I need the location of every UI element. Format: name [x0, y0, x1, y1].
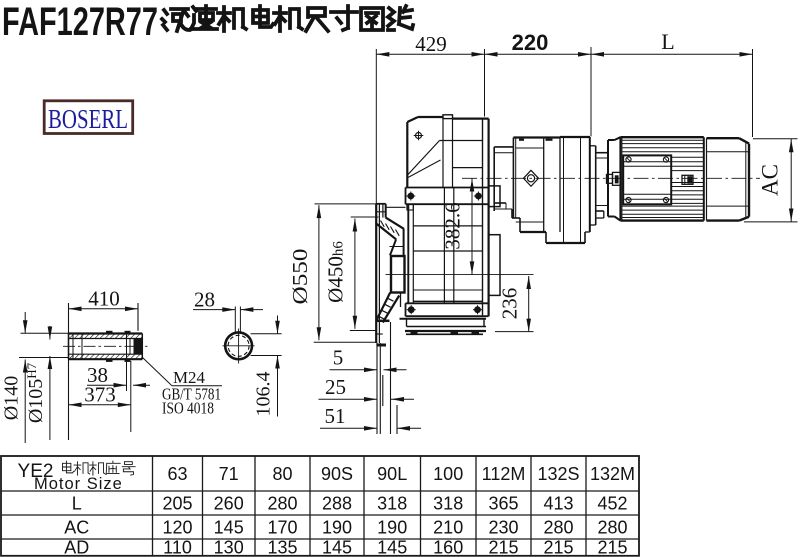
svg-text:132S: 132S [537, 464, 579, 484]
svg-text:452: 452 [597, 494, 627, 514]
svg-text:280: 280 [597, 518, 627, 538]
svg-text:Ø550: Ø550 [288, 249, 312, 305]
svg-text:BOSERL: BOSERL [48, 103, 128, 134]
svg-text:190: 190 [377, 518, 407, 538]
svg-text:71: 71 [219, 464, 239, 484]
svg-text:170: 170 [267, 518, 297, 538]
svg-text:Ø140: Ø140 [1, 376, 23, 420]
svg-text:80: 80 [272, 464, 292, 484]
svg-text:382.6: 382.6 [441, 202, 465, 249]
svg-text:145: 145 [322, 538, 352, 557]
svg-text:410: 410 [88, 287, 120, 311]
svg-text:280: 280 [543, 518, 573, 538]
svg-text:145: 145 [214, 518, 244, 538]
svg-text:215: 215 [597, 538, 627, 557]
svg-text:215: 215 [543, 538, 573, 557]
svg-text:205: 205 [162, 494, 192, 514]
svg-text:230: 230 [488, 518, 518, 538]
svg-text:90L: 90L [377, 464, 407, 484]
svg-text:AD: AD [64, 538, 89, 557]
svg-text:120: 120 [162, 518, 192, 538]
svg-text:373: 373 [84, 383, 116, 407]
svg-text:365: 365 [488, 494, 518, 514]
svg-text:260: 260 [214, 494, 244, 514]
svg-text:28: 28 [194, 288, 215, 312]
svg-text:132M: 132M [590, 464, 635, 484]
svg-text:63: 63 [167, 464, 187, 484]
svg-text:280: 280 [267, 494, 297, 514]
svg-text:100: 100 [433, 464, 463, 484]
svg-text:318: 318 [433, 494, 463, 514]
svg-text:112M: 112M [482, 464, 526, 484]
svg-text:190: 190 [322, 518, 352, 538]
svg-text:413: 413 [543, 494, 573, 514]
svg-text:160: 160 [433, 538, 463, 557]
svg-text:236: 236 [498, 288, 522, 320]
svg-text:210: 210 [433, 518, 463, 538]
svg-text:5: 5 [333, 346, 344, 370]
svg-text:Motor Size: Motor Size [34, 475, 123, 493]
svg-text:AC: AC [758, 164, 783, 196]
svg-text:220: 220 [512, 30, 549, 55]
svg-text:ISO 4018: ISO 4018 [162, 399, 214, 418]
svg-text:145: 145 [377, 538, 407, 557]
svg-text:110: 110 [163, 538, 192, 557]
svg-text:288: 288 [322, 494, 352, 514]
svg-text:215: 215 [488, 538, 518, 557]
svg-text:AC: AC [64, 518, 89, 538]
svg-text:L: L [72, 494, 82, 514]
svg-text:51: 51 [325, 404, 346, 428]
svg-text:106.4: 106.4 [253, 372, 275, 417]
svg-text:L: L [661, 29, 674, 54]
svg-text:90S: 90S [321, 464, 353, 484]
svg-text:135: 135 [267, 538, 297, 557]
svg-text:130: 130 [214, 538, 244, 557]
svg-text:FAF127R77: FAF127R77 [2, 0, 158, 44]
svg-text:25: 25 [325, 375, 346, 399]
svg-text:318: 318 [377, 494, 407, 514]
svg-text:429: 429 [415, 32, 447, 56]
